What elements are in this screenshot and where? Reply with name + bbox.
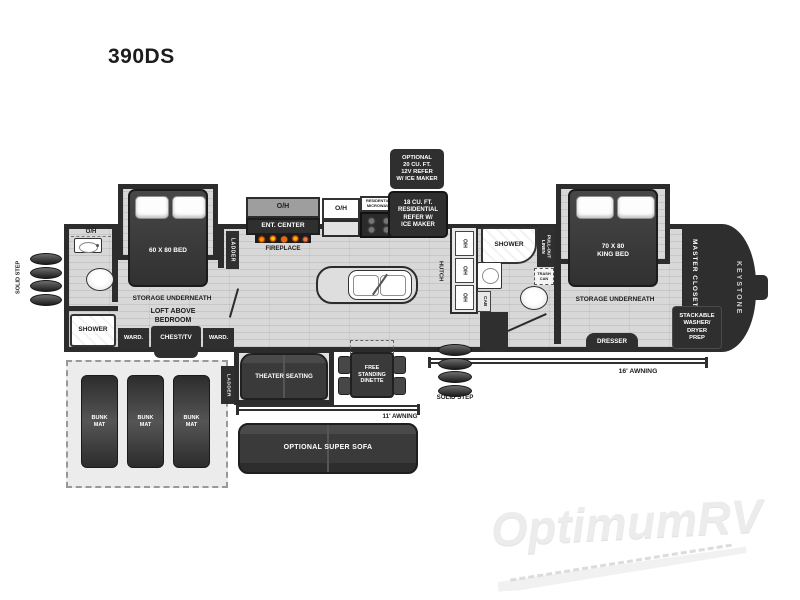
ladder-tab-front: LADDER [226,231,239,269]
super-sofa: OPTIONAL SUPER SOFA [238,423,418,474]
storage-underneath-label-front: STORAGE UNDERNEATH [116,295,228,303]
front-bath-toilet-icon [86,268,114,291]
optional-refrigerator: OPTIONAL 20 CU. FT. 12V REFER W/ ICE MAK… [390,149,444,189]
awning-16-label: 16' AWNING [588,368,688,376]
front-bath-sink [74,238,102,253]
island-sink [348,270,412,300]
pillow-icon [617,196,655,219]
watermark-logo: OptimumRV [490,486,792,557]
king-bed-label: 70 X 80 KING BED [570,243,656,259]
front-bed: 60 X 80 BED [128,189,208,287]
awning-11-label: 11' AWNING [358,413,442,421]
ent-center: ENT. CENTER [246,218,320,235]
front-bath-wall [112,224,118,302]
pillow-icon [135,196,169,219]
kitchen-oh-cabinet: O/H [322,198,360,220]
master-closet-label: MASTER CLOSET [690,232,698,314]
dinette-table: FREE STANDING DINETTE [350,352,394,398]
loft-label: LOFT ABOVE BEDROOM [128,308,218,326]
ward-left: WARD. [118,328,149,349]
dinette-chair [393,356,406,374]
rear-bath-wall [554,224,561,344]
hutch-oh-cabinet: O/H [455,231,474,256]
rear-bath-sink [477,262,502,289]
front-bed-label: 60 X 80 BED [130,247,206,255]
chest-tv: CHEST/TV [151,326,201,350]
hutch-cabinet: O/H O/H O/H [450,226,478,314]
solid-step-left-coil-icon [30,253,62,301]
solid-step-left-label: SOLID STEP [14,252,24,302]
front-bath-shower: SHOWER [70,314,116,347]
theater-sofa: THEATER SEATING [240,353,328,400]
storage-underneath-label-master: STORAGE UNDERNEATH [560,296,670,304]
trash-can: TRASH CAN [534,268,554,285]
awning-11-bar [236,405,420,411]
bunk-mat: BUNK MAT [173,375,210,468]
fireplace-label: FIREPLACE [246,245,320,253]
bunk-mat: BUNK MAT [127,375,164,468]
dresser: DRESSER [586,333,638,351]
hutch-oh-cabinet: O/H [455,285,474,310]
pillow-icon [172,196,206,219]
hitch-pin-icon [754,275,768,300]
ent-oh-cabinet: O/H [246,197,320,218]
kitchen-counter [322,220,360,237]
bedroom-kitchen-wall [218,224,224,268]
rear-toilet-icon [520,286,548,310]
cab-box: CAB [477,291,491,312]
keystone-label: KEYSTONE [735,254,742,322]
front-bath-oh-dash [71,236,111,237]
hutch-label: HUTCH [434,250,446,292]
entry-steps [480,312,508,352]
ladder-tab-bunk: LADDER [221,366,234,404]
fireplace-flame-icon [255,235,311,243]
pillow-icon [576,196,614,219]
pullout-linen: PULL-OUT LINEN [537,226,555,267]
watermark: OptimumRV [490,486,795,600]
refrigerator: 18 CU. FT. RESIDENTIAL REFER W/ ICE MAKE… [388,191,448,238]
rear-shower: SHOWER [481,227,537,264]
front-bath-wall-low [66,306,118,311]
hutch-oh-cabinet: O/H [455,258,474,283]
page-title: 390DS [108,44,175,70]
solid-step-right-coil-icon [438,344,472,392]
floorplan-canvas: 390DS OptimumRV MASTER CLOSET KEYSTONE S… [0,0,800,600]
washer-dryer-prep: STACKABLE WASHER/ DRYER PREP [672,306,722,349]
dinette-chair [393,377,406,395]
king-bed: 70 X 80 KING BED [568,189,658,287]
bunk-mat: BUNK MAT [81,375,118,468]
ward-right: WARD. [203,328,234,349]
